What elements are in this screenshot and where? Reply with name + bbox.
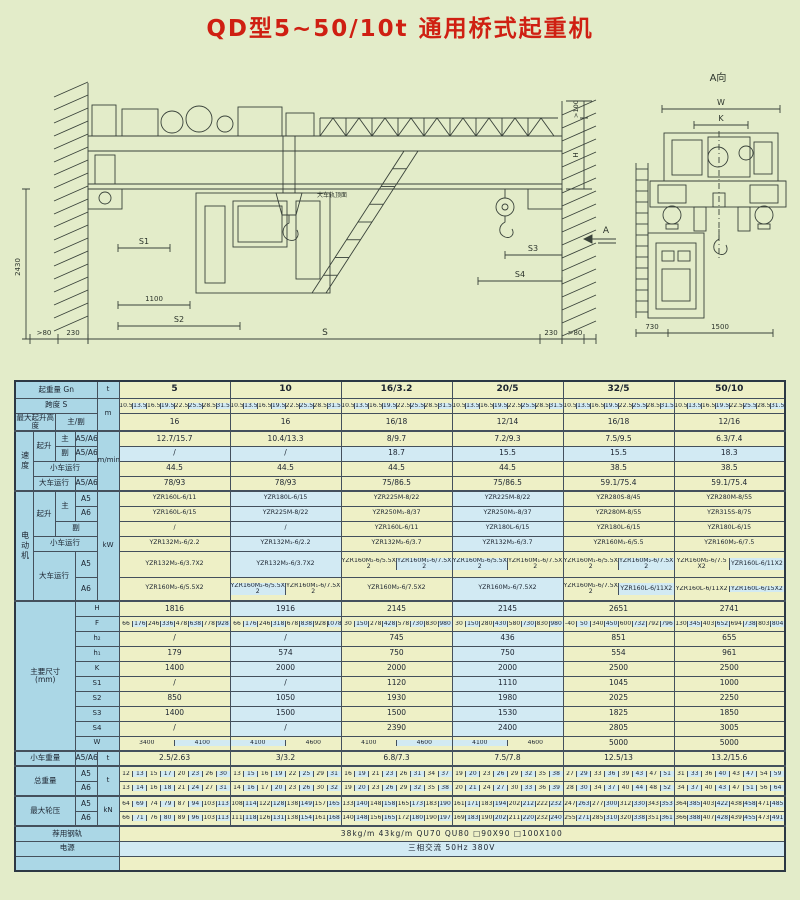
data-cell: 2000 [341,661,452,676]
sub-cell: 473 [756,815,770,821]
sub-cell: 66 [231,621,244,627]
sub-cell: 165 [396,801,410,807]
sub-cell: 246 [146,621,160,627]
data-cell: 44.5 [452,461,563,476]
sub-cell: 165 [382,815,396,821]
sub-cell: 23 [285,785,299,791]
data-cell: / [119,446,230,461]
drawing-label: A向 [710,71,727,84]
data-cell: YZR180L-6/15 [452,521,563,536]
sub-cell: 22.5 [507,403,521,409]
sub-cell: 38 [549,771,563,777]
sub-cell: 32 [521,771,535,777]
data-cell: -4050340450600732792796 [563,616,674,631]
sub-cell: 25 [299,771,313,777]
sub-cell: 318 [271,621,285,627]
data-cell: 5000 [563,736,674,751]
data-cell: YZR160M₂-6/7.5X2 [452,577,563,601]
data-cell: 661762463186788389281078 [230,616,341,631]
drawing-label: >100 [572,100,580,118]
unit-label: F [75,616,119,631]
sub-cell: 173 [410,801,424,807]
sub-cell: 18 [160,785,174,791]
spec-table: 起重量 Gnt51016/3.220/532/550/10跨度 Sm10.513… [14,380,786,872]
sub-cell: 150 [465,621,479,627]
data-cell: YZR225M-8/22 [452,491,563,506]
sub-cell: 285 [590,815,604,821]
unit-label: S2 [75,691,119,706]
data-cell: 50/10 [674,381,785,398]
sub-cell: 28.5 [424,403,438,409]
sub-cell: 13 [120,785,133,791]
data-cell: 3/3.2 [230,751,341,766]
sub-cell: 27 [202,785,216,791]
section-label: 速度 [15,431,33,491]
sub-cell: 277 [590,801,604,807]
unit-label: kN [97,796,119,826]
sub-cell: 21 [465,785,479,791]
unit-label: t [97,751,119,766]
sub-cell: 232 [535,815,549,821]
data-cell: YZR132M₂-6/3.7 [341,536,452,551]
data-cell: 2000 [452,661,563,676]
sub-cell: 31 [216,785,230,791]
sub-cell: 54 [756,771,770,777]
sub-cell: 19 [453,771,466,777]
sub-cell: 1078 [327,621,341,627]
row-label: A5/A6 [75,751,97,766]
data-cell: YZR160M₂-6/5.5X2 [119,577,230,601]
sub-cell: 172 [396,815,410,821]
sub-cell: YZR160M₂-6/5.5X2 [453,558,508,570]
data-cell: 10.513.516.519.522.525.528.531.5 [452,398,563,413]
sub-cell: 130 [675,621,688,627]
row-label: A5/A6 [75,446,97,461]
sub-cell: 71 [132,815,146,821]
data-cell: 18.3 [674,446,785,461]
sub-cell: 4600 [396,740,452,746]
sub-cell: YZR160M₂-6/5.5X2 [231,583,286,595]
sub-cell: 29 [576,771,590,777]
sub-cell: 74 [146,801,160,807]
data-cell: YZR280M-8/55 [563,506,674,521]
data-cell: 2500 [674,661,785,676]
data-cell: 10.4/13.3 [230,431,341,446]
data-cell: YZR180L-6/15 [230,491,341,506]
data-cell: 1500 [341,706,452,721]
sub-cell: 37 [604,785,618,791]
data-cell: 667176808996103113 [119,811,230,826]
sub-cell: 43 [715,785,729,791]
data-cell: 2390 [341,721,452,736]
sub-cell: 804 [770,621,784,627]
data-cell: 32/5 [563,381,674,398]
data-cell: 1314161821242731 [119,781,230,796]
sub-cell: 10.5 [564,403,577,409]
sub-cell: 40 [715,771,729,777]
data-cell: YZR225M-8/22 [341,491,452,506]
data-cell: / [119,631,230,646]
data-cell: 10.513.516.519.522.525.528.531.5 [119,398,230,413]
data-cell: YZR160M₂-6/5.5X2YZR160M₁-6/7.5X2 [452,551,563,577]
drawing-label: 2430 [14,258,22,276]
data-cell: 1213151720232630 [119,766,230,781]
sub-cell: 20 [174,771,188,777]
sub-cell: 430 [493,621,507,627]
table-row: A666717680899610311311111812613113815416… [15,811,785,826]
sub-cell: 26 [396,771,410,777]
sub-cell: 38 [438,785,452,791]
sub-cell: 138 [285,815,299,821]
sub-cell: 22.5 [618,403,632,409]
sub-cell: 27 [564,771,577,777]
unit-label: S1 [75,676,119,691]
data-cell: 2400 [452,721,563,736]
data-cell: 850 [119,691,230,706]
sub-cell: 156 [368,815,382,821]
data-cell: 646974798794103113 [119,796,230,811]
sub-cell: 652 [715,621,729,627]
data-cell: 10.513.516.519.522.525.528.531.5 [674,398,785,413]
row-label: 荐用钢轨 [15,826,119,841]
sub-cell: 23 [382,771,396,777]
row-label: A5 [75,491,97,506]
sub-cell: 4100 [342,740,397,746]
unit-label: H [75,601,119,616]
data-cell: 1530 [452,706,563,721]
sub-cell: 485 [770,801,784,807]
aux-hook-icon [500,216,513,237]
sub-cell: 113 [216,801,230,807]
row-label: A6 [75,506,97,521]
drawing-label: S1 [139,237,149,246]
row-label: 起升 [33,431,55,461]
sub-cell: 455 [743,815,757,821]
data-cell: 1619212326313437 [341,766,452,781]
data-cell: 16/18 [563,413,674,431]
sub-cell: 222 [535,801,549,807]
sub-cell: 36 [604,771,618,777]
data-cell: 2805 [563,721,674,736]
sub-cell: 34 [424,771,438,777]
sub-cell: 21 [174,785,188,791]
sub-cell: 33 [521,785,535,791]
data-cell: YZR132M₂-6/3.7X2 [119,551,230,577]
sub-cell: 158 [382,801,396,807]
data-cell: 7.5/7.8 [452,751,563,766]
row-label: A5/A6 [75,431,97,446]
row-label: A6 [75,781,97,796]
data-cell: 2830343740444852 [563,781,674,796]
sub-cell: 43 [632,771,646,777]
stair-rungs [324,169,407,276]
data-cell: 554 [563,646,674,661]
sub-cell: 108 [231,801,244,807]
table-row: A6YZR160M₂-6/5.5X2YZR160M₂-6/5.5X2YZR160… [15,577,785,601]
data-cell: 1110 [452,676,563,691]
sub-cell: 778 [202,621,216,627]
sub-cell: YZR160L-6/11X2 [618,583,674,595]
drawing-label: K [718,114,724,123]
sub-cell: 29 [313,771,327,777]
data-cell: YZR132M₂-6/3.7 [452,536,563,551]
sub-cell: 202 [493,815,507,821]
sub-cell: 10.5 [453,403,466,409]
data-cell: 16/18 [341,413,452,431]
table-row: W340041004100460041004600410046005000500… [15,736,785,751]
data-cell: 16 [230,413,341,431]
sub-cell: 385 [687,801,701,807]
unit-label: m/min [97,431,119,491]
data-cell: 851 [563,631,674,646]
sub-cell: 131 [271,815,285,821]
table-row: A6YZR160L-6/15YZR225M-8/22YZR250M₁-8/37Y… [15,506,785,521]
data-cell: 12.7/15.7 [119,431,230,446]
row-label: A5 [75,796,97,811]
sub-cell: 478 [174,621,188,627]
sub-cell: 176 [243,621,257,627]
table-row: 最大起升高度主/副161616/1812/1416/1812/16 [15,413,785,431]
data-cell: 5000 [674,736,785,751]
drawing-label: 1100 [145,295,163,303]
sub-cell: 183 [465,815,479,821]
drawing-label: >80 [37,329,52,337]
sub-cell: 47 [729,785,743,791]
data-cell: 44.5 [119,461,230,476]
table-row: 小车运行YZR132M₁-6/2.2YZR132M₁-6/2.2YZR132M₂… [15,536,785,551]
data-cell: / [230,676,341,691]
sub-cell: 19.5 [493,403,507,409]
sub-cell: 23 [479,771,493,777]
data-cell: YZR250M₁-8/37 [452,506,563,521]
data-cell: 7.2/9.3 [452,431,563,446]
sub-cell: 263 [576,801,590,807]
sub-cell: 30 [216,771,230,777]
sub-cell: YZR160L-6/15X2 [729,586,784,592]
sub-cell: 35 [424,785,438,791]
sub-cell: 13 [231,771,244,777]
sub-cell: 928 [216,621,230,627]
unit-label: t [97,381,119,398]
sub-cell: 428 [382,621,396,627]
sub-cell: 31.5 [660,403,674,409]
sub-cell: 20 [453,785,466,791]
sub-cell: 34 [675,785,688,791]
data-cell: YZR132M₁-6/2.2 [119,536,230,551]
walkway-railing [320,118,558,136]
data-cell: 1916 [230,601,341,616]
sub-cell: 66 [120,621,133,627]
unit-label: S3 [75,706,119,721]
drawing-label: 230 [544,329,557,337]
sub-cell: 338 [632,815,646,821]
data-cell: 2145 [452,601,563,616]
sub-cell: 16 [243,785,257,791]
row-label: 小车重量 [15,751,75,766]
row-label: A5/A6 [75,476,97,491]
sub-cell: 694 [729,621,743,627]
sub-cell: 580 [507,621,521,627]
table-row: S1//1120111010451000 [15,676,785,691]
data-cell: 13.2/15.6 [674,751,785,766]
sub-cell: 19.5 [160,403,174,409]
data-cell: YZR315S-8/75 [674,506,785,521]
data-cell: 78/93 [119,476,230,491]
sub-cell: 194 [493,801,507,807]
data-cell: 2025 [563,691,674,706]
sub-cell: 28.5 [535,403,549,409]
sub-cell: 343 [646,801,660,807]
data-cell: 1416172023263032 [230,781,341,796]
sub-cell: 16 [146,785,160,791]
sub-cell: 40 [701,785,715,791]
sub-cell: 4100 [453,740,508,746]
sub-cell: 312 [618,801,632,807]
sub-cell: 44 [632,785,646,791]
sub-cell: 26 [493,771,507,777]
drawing-label: S4 [515,270,525,279]
data-cell: 130345403652694738803804 [674,616,785,631]
data-cell: / [230,721,341,736]
sub-cell: 30 [507,785,521,791]
sub-cell: 96 [188,815,202,821]
data-cell: 2000 [230,661,341,676]
sub-cell: 28.5 [313,403,327,409]
row-label: 总重量 [15,766,75,796]
sub-cell: 320 [618,815,632,821]
sub-cell: 10.5 [231,403,244,409]
data-cell: 1920232629323538 [452,766,563,781]
data-cell: 12/16 [674,413,785,431]
sub-cell: 4100 [231,740,286,746]
sub-cell: 23 [188,771,202,777]
data-cell: YZR160L-6/11 [119,491,230,506]
data-cell: 10.513.516.519.522.525.528.531.5 [563,398,674,413]
sub-cell: 169 [453,815,466,821]
sub-cell: 28 [564,785,577,791]
sub-cell: 246 [257,621,271,627]
unit-label: m [97,398,119,431]
sub-cell: 30 [576,785,590,791]
drawing-label: >80 [568,329,583,337]
data-cell: 15.5 [452,446,563,461]
sub-cell: 838 [299,621,313,627]
sub-cell: 25.5 [743,403,757,409]
sub-cell: YZR160M₂-6/7.5X2 [564,583,619,595]
sub-cell: 30 [453,621,466,627]
sub-cell: 24 [188,785,202,791]
sub-cell: 25.5 [521,403,535,409]
sub-cell: 31.5 [770,403,784,409]
sub-cell: 168 [327,815,341,821]
data-cell: 38.5 [674,461,785,476]
sub-cell: 10.5 [342,403,355,409]
sub-cell: 796 [660,621,674,627]
data-cell: 1816 [119,601,230,616]
sub-cell: 140 [354,801,368,807]
data-cell: 133140148158165173183190 [341,796,452,811]
sub-cell: 422 [715,801,729,807]
data-cell: 750 [452,646,563,661]
data-cell: 三相交流 50Hz 380V [119,841,785,856]
sub-cell: 240 [549,815,563,821]
sub-cell: 980 [438,621,452,627]
row-label: 跨度 S [15,398,97,413]
sub-cell: 300 [604,801,618,807]
table-row: 总重量A5t1213151720232630131516192225293116… [15,766,785,781]
sub-cell: 16 [342,771,355,777]
sub-cell: 28.5 [202,403,216,409]
sub-cell: 56 [756,785,770,791]
sub-cell: 31.5 [549,403,563,409]
data-cell: 1315161922252931 [230,766,341,781]
sub-cell: 458 [743,801,757,807]
table-row: A613141618212427311416172023263032192023… [15,781,785,796]
table-row: 小车运行44.544.544.544.538.538.5 [15,461,785,476]
sub-cell: 69 [132,801,146,807]
sub-cell: 33 [590,771,604,777]
data-cell: 30150278428578730830980 [341,616,452,631]
sub-cell: 428 [715,815,729,821]
sub-cell: 928 [313,621,327,627]
sub-cell: 16 [257,771,271,777]
sub-cell: 10.5 [675,403,688,409]
sub-cell: 79 [160,801,174,807]
sub-cell: 491 [770,815,784,821]
data-cell: / [119,521,230,536]
sub-cell: 22.5 [174,403,188,409]
sub-cell: 126 [257,815,271,821]
sub-cell: 22.5 [396,403,410,409]
row-label: 大车运行 [33,476,75,491]
sub-cell: 600 [618,621,632,627]
row-label: 大车运行 [33,551,75,601]
sub-cell: 738 [743,621,757,627]
data-cell: YZR160M₂-6/7.5X2YZR160L-6/11X2 [563,577,674,601]
data-cell: 745 [341,631,452,646]
sub-cell: 36 [701,771,715,777]
sub-cell: 150 [354,621,368,627]
sub-cell: 43 [729,771,743,777]
sub-cell: YZR160M₁-6/7.5X2 [396,558,452,570]
row-label: 主 [55,431,75,446]
sub-cell: 183 [424,801,438,807]
sub-cell: 16.5 [146,403,160,409]
wall-hatch-left [54,82,88,331]
spec-table-body: 起重量 Gnt51016/3.220/532/550/10跨度 Sm10.513… [15,381,785,871]
sub-cell: 16.5 [257,403,271,409]
sub-cell: 340 [590,621,604,627]
sub-cell: 140 [342,815,355,821]
sub-cell: 17 [257,785,271,791]
row-label: A6 [75,811,97,826]
sub-cell: 34 [590,785,604,791]
sub-cell: 13 [132,771,146,777]
data-cell: 2250 [674,691,785,706]
sub-cell: 66 [120,815,133,821]
sub-cell: 26 [202,771,216,777]
table-row: 大车运行A5YZR132M₂-6/3.7X2YZR132M₂-6/3.7X2YZ… [15,551,785,577]
data-cell: 44.5 [230,461,341,476]
unit-label: S4 [75,721,119,736]
sub-cell: 13.5 [132,403,146,409]
table-row: h₁179574750750554961 [15,646,785,661]
sub-cell: 31.5 [327,403,341,409]
sub-cell: 578 [396,621,410,627]
sub-cell: 14 [231,785,244,791]
sub-cell: 31 [675,771,688,777]
sub-cell: 76 [146,815,160,821]
